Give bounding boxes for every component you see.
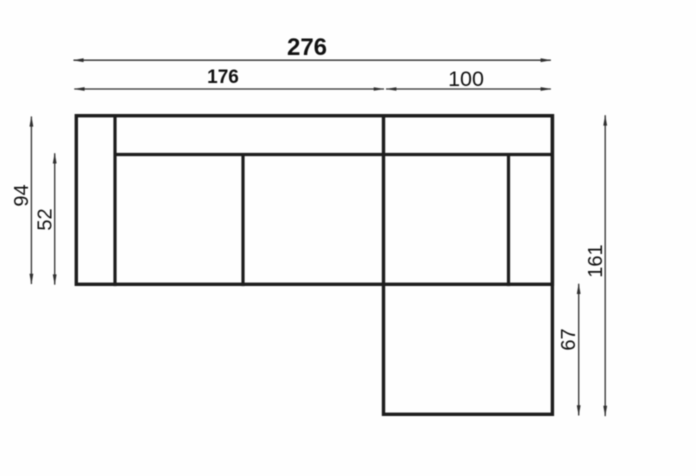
svg-text:176: 176 [207, 67, 239, 88]
svg-text:67: 67 [558, 328, 580, 350]
svg-text:94: 94 [11, 184, 33, 206]
svg-text:276: 276 [287, 34, 327, 61]
svg-text:161: 161 [585, 244, 607, 277]
svg-text:100: 100 [448, 67, 484, 91]
svg-text:52: 52 [34, 208, 56, 230]
